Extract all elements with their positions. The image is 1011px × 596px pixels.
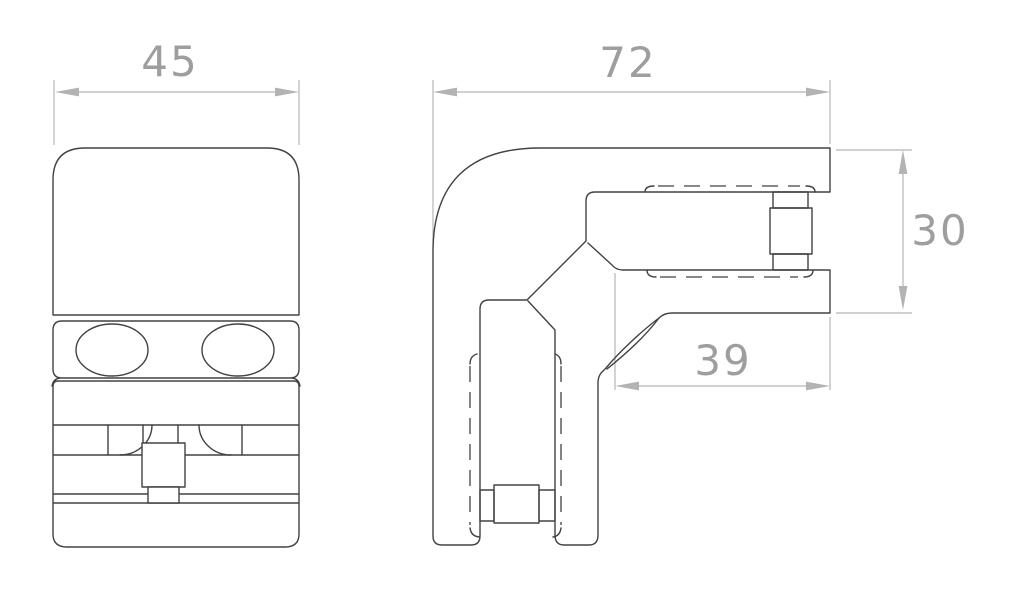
- dimension-extension-lines: [54, 80, 299, 145]
- side-height-dimension: 30: [836, 150, 969, 313]
- side-lower-gasket-end-hooks: [647, 270, 813, 277]
- side-body: [433, 148, 830, 545]
- glass-clamp-drawing: 45 72 30: [0, 0, 1011, 596]
- dim-label-side-height: 30: [911, 206, 968, 255]
- front-oval-hole-left: [76, 324, 148, 376]
- dim-arrowhead-right: [275, 88, 299, 97]
- side-top-gasket-end-hooks: [645, 186, 815, 192]
- side-top-screw-barrel: [770, 208, 812, 254]
- front-view: 45: [52, 37, 300, 547]
- side-bottom-screw-stub-right: [539, 490, 555, 521]
- side-slot-gasket-hidden-lines: [470, 366, 561, 525]
- dim-arrowhead-left: [55, 88, 79, 97]
- front-band-lip-curls: [52, 378, 300, 386]
- dim-arrowhead-right: [806, 88, 830, 97]
- dim-arrowhead-left: [433, 88, 457, 97]
- dim-arrowhead-left: [615, 382, 639, 391]
- side-lower-arm-outline: [528, 243, 830, 545]
- dim-label-side-width: 72: [599, 38, 656, 87]
- side-bottom-screw-barrel: [494, 485, 539, 523]
- side-top-screw-stub-lower: [773, 254, 808, 270]
- front-oval-hole-right: [202, 324, 274, 376]
- side-view: 72 30 39: [433, 38, 969, 545]
- dim-label-front-width: 45: [141, 37, 198, 86]
- side-bottom-screw-stub-left: [480, 490, 494, 521]
- technical-drawing-canvas: 45 72 30: [0, 0, 1011, 596]
- front-body: [52, 148, 300, 547]
- side-top-screw-stub-upper: [773, 192, 808, 208]
- dim-arrowhead-right: [806, 382, 830, 391]
- front-cavity-arc-right: [199, 425, 231, 455]
- front-screw-tip: [148, 487, 179, 503]
- dim-arrowhead-bottom: [899, 286, 908, 310]
- front-top-cap: [53, 148, 299, 315]
- dim-label-side-arm: 39: [694, 336, 751, 385]
- front-width-dimension: 45: [54, 37, 299, 145]
- front-screw-head: [142, 443, 185, 487]
- side-slot-gasket-hooks: [470, 354, 561, 537]
- dim-arrowhead-top: [899, 150, 908, 174]
